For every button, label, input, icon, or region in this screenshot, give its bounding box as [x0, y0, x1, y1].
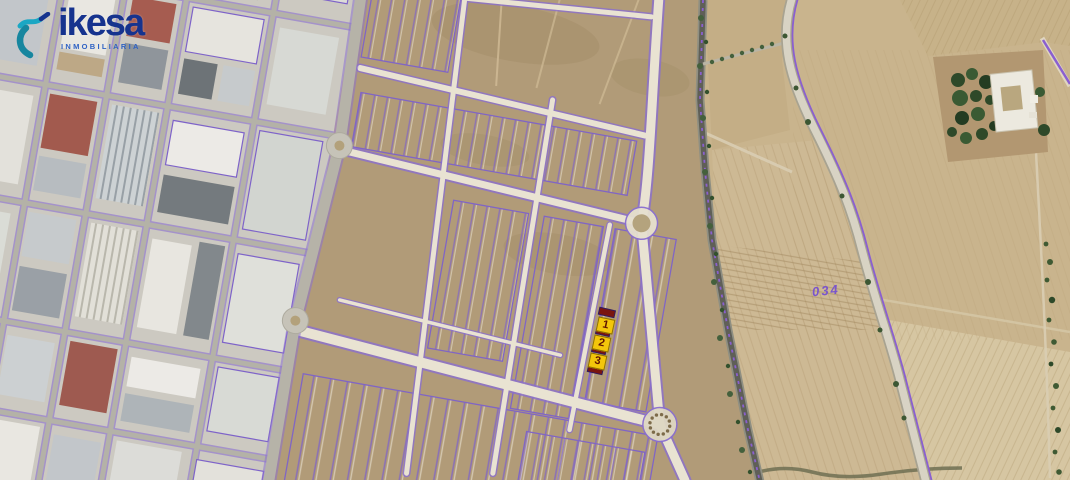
parcel-marker-2[interactable]: 2 [592, 334, 612, 352]
farm-compound [933, 50, 1050, 162]
map-canvas[interactable] [0, 0, 1070, 480]
brand-swoosh-icon [14, 12, 56, 65]
aerial-map-viewport[interactable]: 1 2 3 034 ikesa INMOBILIARIA [0, 0, 1070, 480]
brand-logo: ikesa INMOBILIARIA [14, 4, 143, 65]
cadastral-polygon-label: 034 [811, 282, 840, 300]
brand-tagline: INMOBILIARIA [61, 42, 143, 51]
parcel-marker-1[interactable]: 1 [596, 316, 616, 334]
brand-name: ikesa [58, 4, 143, 42]
parcel-marker-3[interactable]: 3 [588, 352, 608, 370]
